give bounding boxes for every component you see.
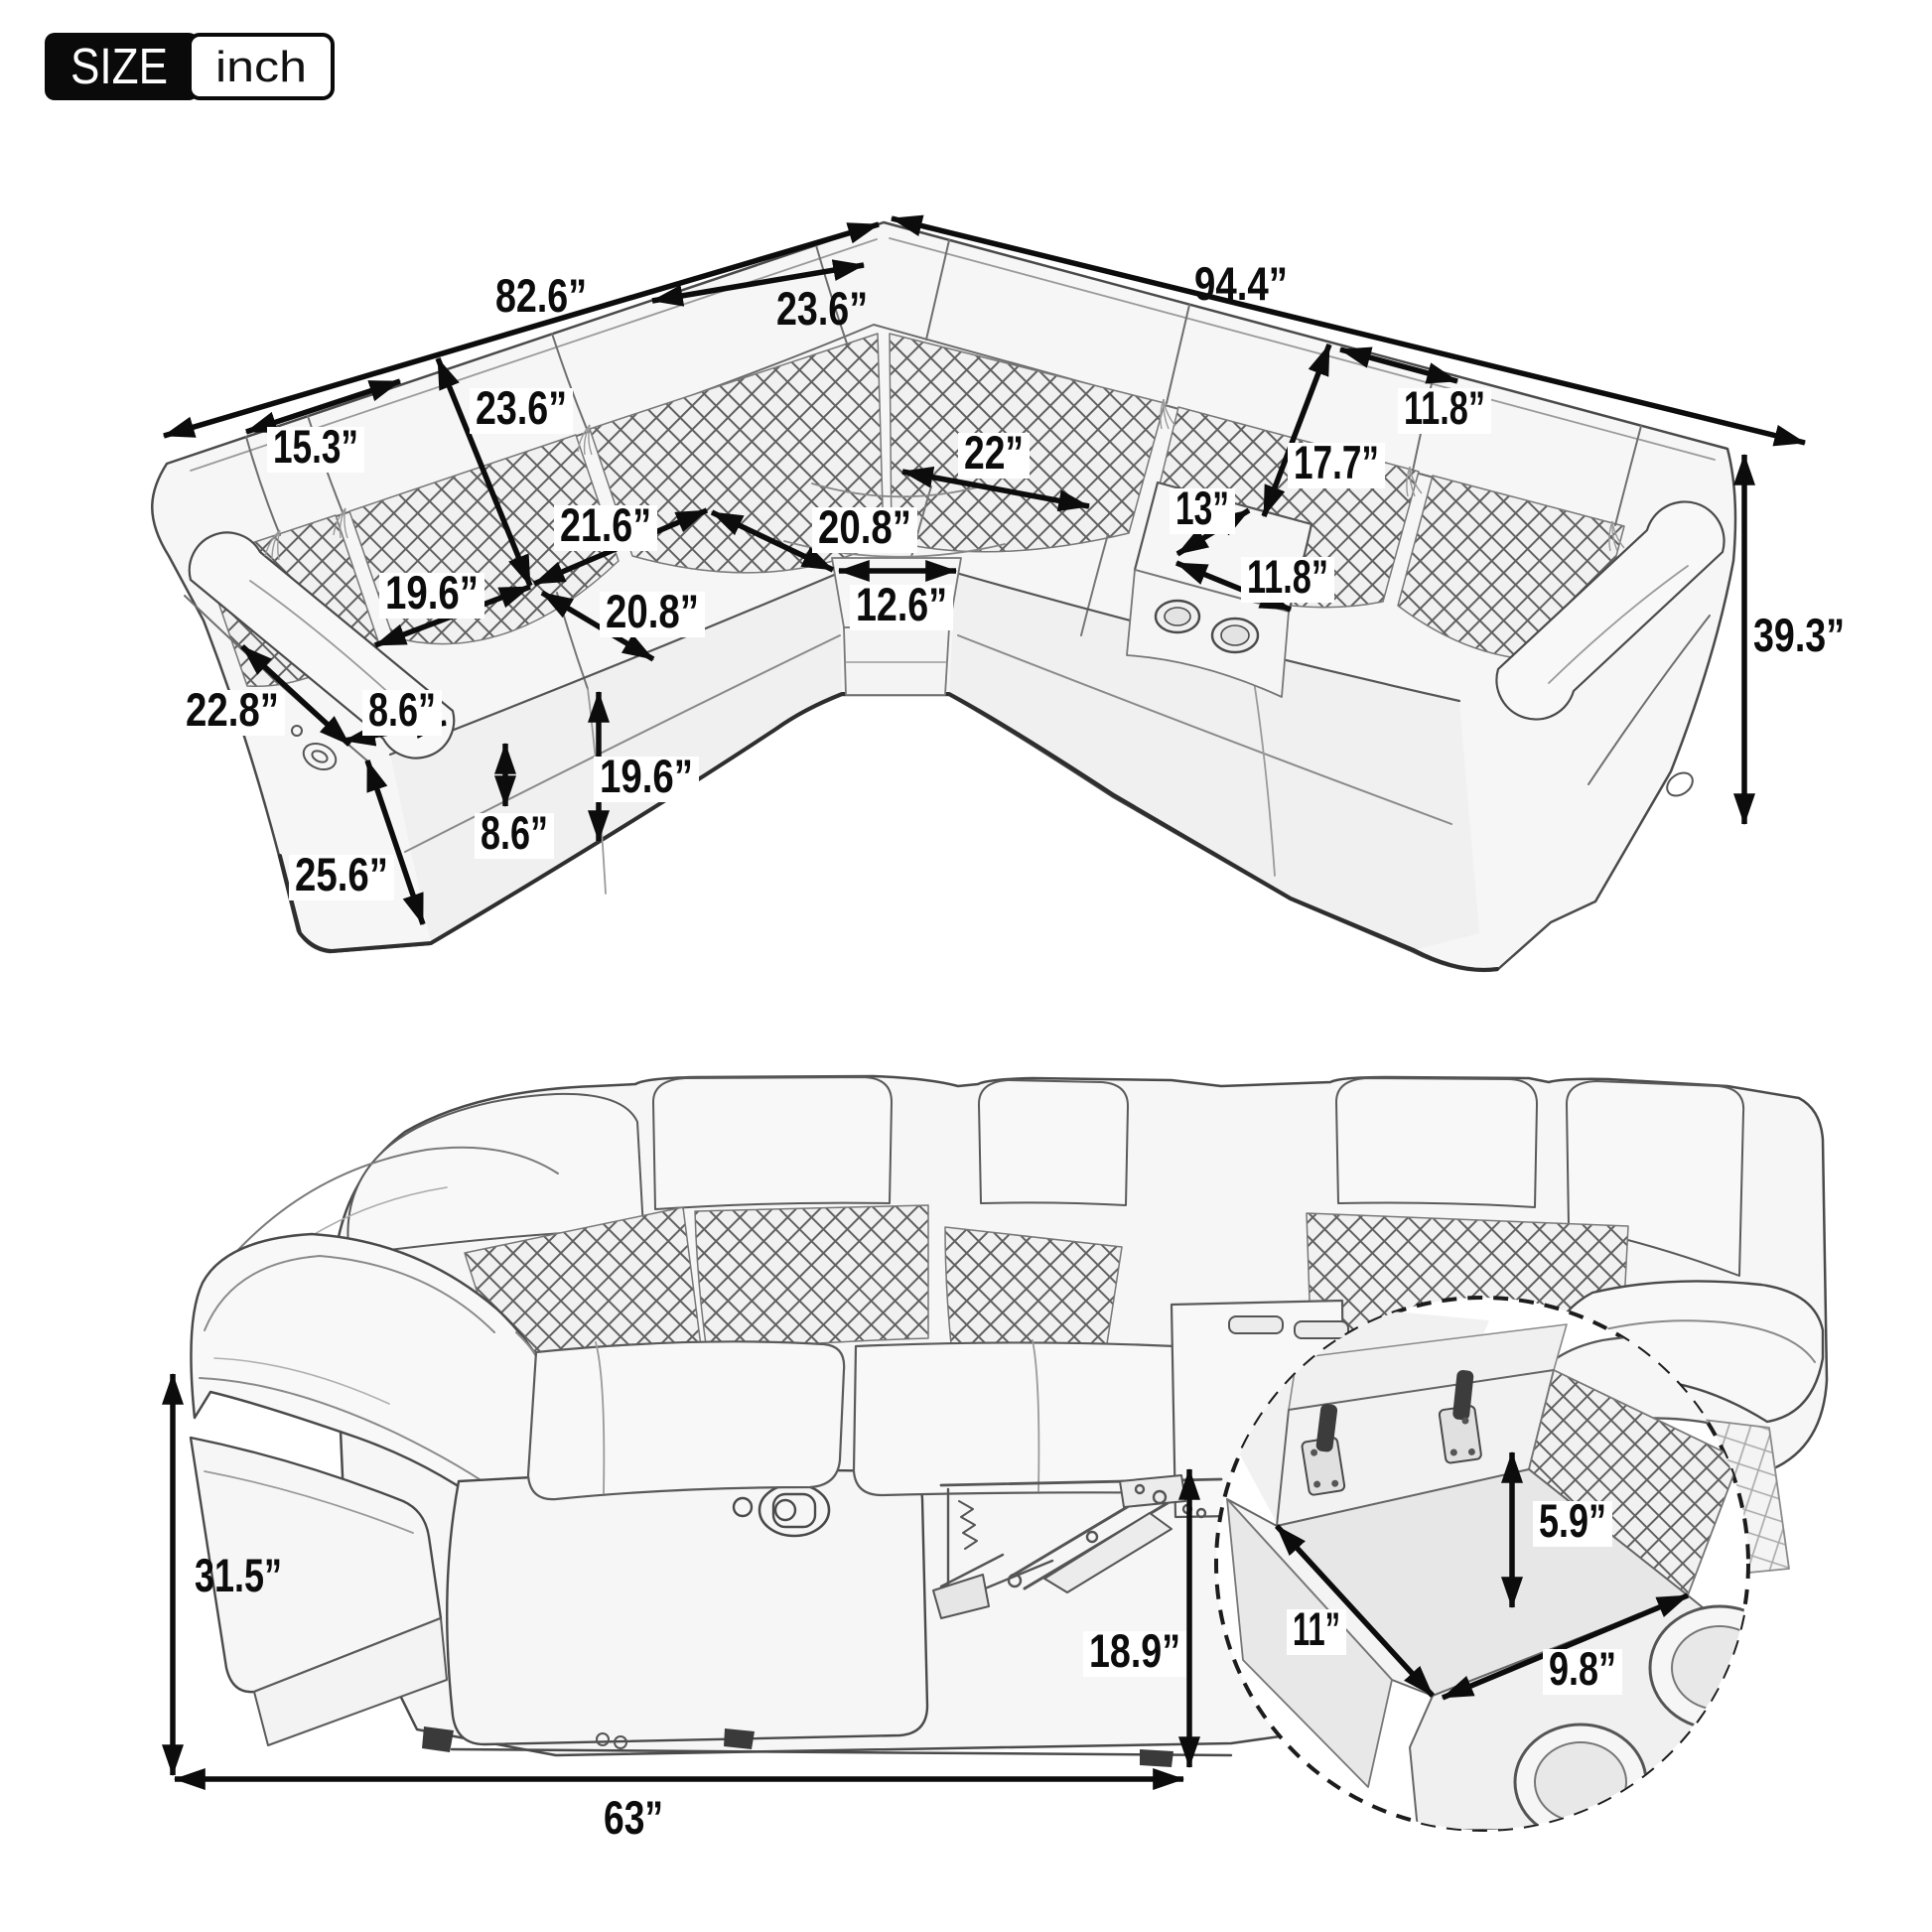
svg-text:21.6”: 21.6” — [560, 498, 651, 551]
svg-text:39.3”: 39.3” — [1753, 609, 1845, 661]
svg-text:19.6”: 19.6” — [600, 750, 693, 802]
svg-text:12.6”: 12.6” — [856, 578, 947, 630]
svg-text:22.8”: 22.8” — [186, 683, 279, 736]
svg-text:8.6”: 8.6” — [481, 806, 548, 859]
svg-text:15.3”: 15.3” — [273, 420, 358, 473]
svg-text:17.7”: 17.7” — [1294, 436, 1379, 488]
svg-text:8.6”: 8.6” — [368, 683, 436, 736]
svg-text:20.8”: 20.8” — [606, 585, 699, 637]
svg-text:19.6”: 19.6” — [385, 566, 479, 619]
svg-text:63”: 63” — [604, 1791, 663, 1844]
svg-text:11.8”: 11.8” — [1247, 550, 1328, 603]
svg-text:13”: 13” — [1175, 482, 1229, 534]
svg-text:31.5”: 31.5” — [195, 1549, 282, 1601]
svg-text:11”: 11” — [1293, 1602, 1340, 1655]
svg-text:25.6”: 25.6” — [295, 848, 388, 900]
svg-text:82.6”: 82.6” — [495, 269, 587, 322]
svg-text:20.8”: 20.8” — [818, 500, 911, 553]
svg-text:9.8”: 9.8” — [1549, 1642, 1616, 1695]
svg-text:18.9”: 18.9” — [1089, 1624, 1180, 1677]
svg-text:inch: inch — [215, 43, 307, 91]
svg-text:94.4”: 94.4” — [1194, 257, 1288, 310]
svg-text:11.8”: 11.8” — [1404, 381, 1485, 434]
svg-text:5.9”: 5.9” — [1539, 1494, 1606, 1547]
svg-text:SIZE: SIZE — [70, 38, 168, 94]
svg-text:22”: 22” — [964, 426, 1024, 479]
svg-text:23.6”: 23.6” — [476, 381, 567, 434]
svg-text:23.6”: 23.6” — [776, 282, 868, 335]
